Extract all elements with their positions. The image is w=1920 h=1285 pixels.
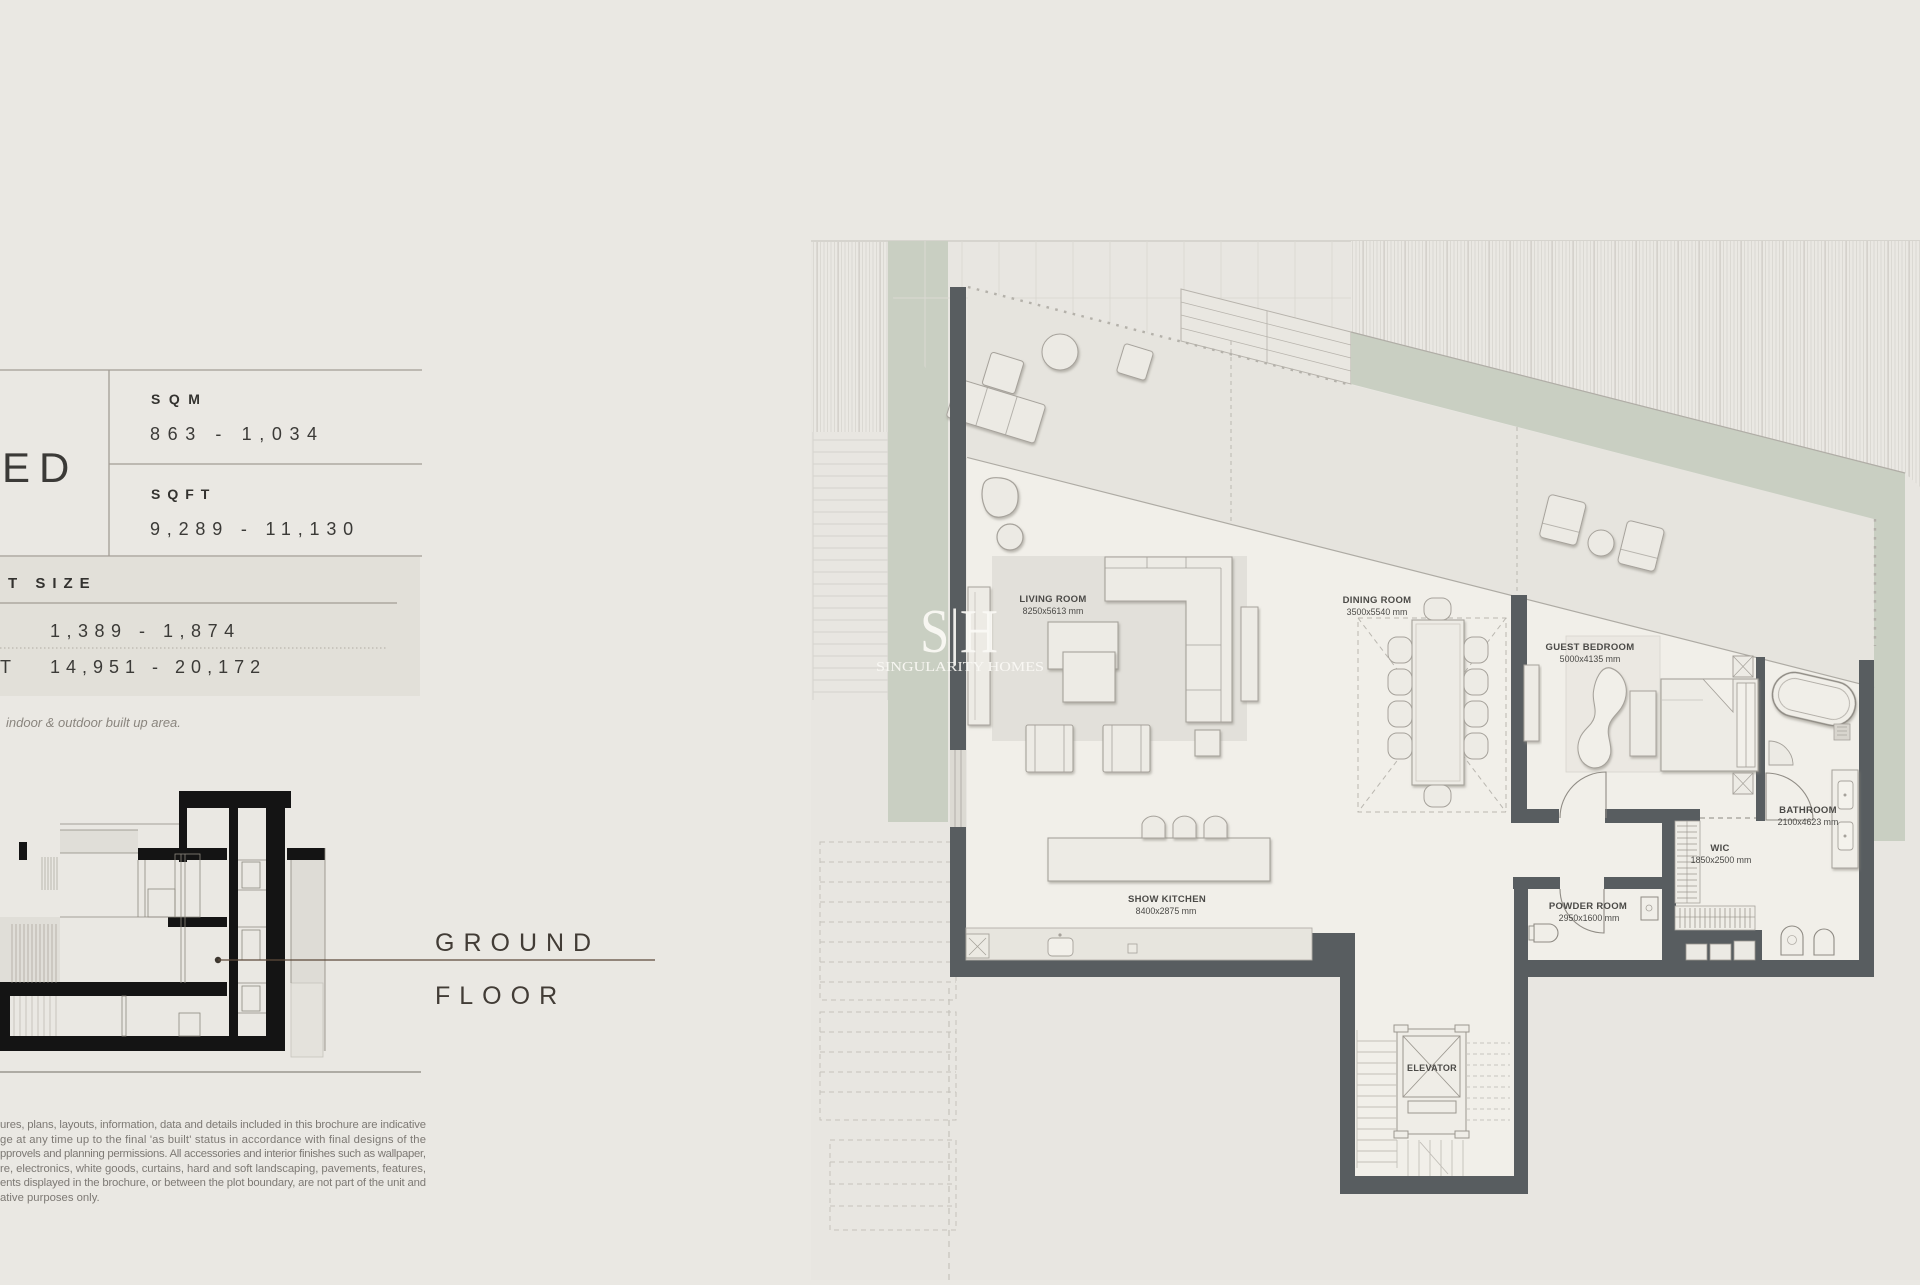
- svg-text:ge at any time up to the final: ge at any time up to the final 'as built…: [0, 1134, 426, 1146]
- svg-text:indoor & outdoor built up area: indoor & outdoor built up area.: [6, 715, 181, 730]
- svg-text:ELEVATOR: ELEVATOR: [1407, 1063, 1457, 1073]
- svg-text:ative purposes only.: ative purposes only.: [0, 1192, 100, 1204]
- svg-text:863 - 1,034: 863 - 1,034: [150, 424, 325, 444]
- svg-text:SINGULARITY HOMES: SINGULARITY HOMES: [876, 659, 1044, 674]
- svg-text:14,951 - 20,172: 14,951 - 20,172: [50, 657, 266, 677]
- svg-text:8250x5613 mm: 8250x5613 mm: [1023, 606, 1084, 616]
- svg-text:9,289 - 11,130: 9,289 - 11,130: [150, 519, 360, 539]
- svg-text:2950x1600 mm: 2950x1600 mm: [1559, 913, 1620, 923]
- svg-text:T SIZE: T SIZE: [8, 575, 97, 592]
- svg-text:1,389 - 1,874: 1,389 - 1,874: [50, 621, 241, 641]
- svg-text:ents displayed in the brochure: ents displayed in the brochure, or betwe…: [0, 1177, 426, 1189]
- svg-text:3500x5540 mm: 3500x5540 mm: [1347, 607, 1408, 617]
- svg-text:2100x4623 mm: 2100x4623 mm: [1778, 817, 1839, 827]
- svg-text:S|H: S|H: [920, 598, 998, 666]
- svg-text:T: T: [0, 657, 16, 677]
- svg-text:BATHROOM: BATHROOM: [1779, 805, 1837, 816]
- svg-text:POWDER ROOM: POWDER ROOM: [1549, 901, 1627, 912]
- svg-text:5000x4135 mm: 5000x4135 mm: [1560, 654, 1621, 664]
- svg-text:ED: ED: [2, 444, 78, 491]
- svg-text:1850x2500 mm: 1850x2500 mm: [1691, 855, 1752, 865]
- svg-text:SHOW KITCHEN: SHOW KITCHEN: [1128, 894, 1206, 905]
- svg-text:re, electronics, white goods,: re, electronics, white goods, curtains, …: [0, 1163, 426, 1175]
- svg-text:DINING ROOM: DINING ROOM: [1343, 595, 1412, 606]
- svg-text:GROUND: GROUND: [435, 929, 600, 957]
- svg-text:GUEST BEDROOM: GUEST BEDROOM: [1546, 642, 1635, 653]
- svg-text:8400x2875 mm: 8400x2875 mm: [1136, 906, 1197, 916]
- svg-text:SQM: SQM: [151, 391, 208, 407]
- svg-text:FLOOR: FLOOR: [435, 982, 566, 1010]
- svg-text:pprovels and planning permissi: pprovels and planning permissions. All a…: [0, 1148, 426, 1160]
- svg-text:ures, plans, layouts, informat: ures, plans, layouts, information, data …: [0, 1119, 426, 1131]
- svg-text:LIVING ROOM: LIVING ROOM: [1019, 594, 1086, 605]
- svg-text:WIC: WIC: [1710, 843, 1729, 854]
- svg-text:SQFT: SQFT: [151, 486, 216, 502]
